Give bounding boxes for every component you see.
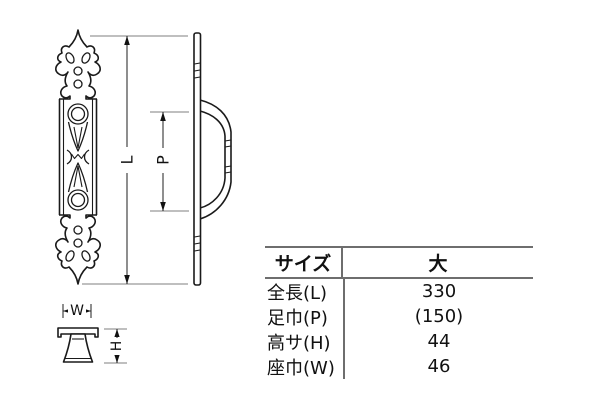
plate-carving <box>67 104 89 210</box>
table-row: 足巾(P)(150) <box>265 304 533 329</box>
dimension-label-W: W <box>70 303 84 319</box>
catalog-page: L P <box>0 0 600 400</box>
handle-inner-curve <box>200 111 225 208</box>
arrow-up-icon <box>160 112 166 121</box>
row-label: 座巾(W) <box>265 354 345 379</box>
dimension-label-L: L <box>118 155 137 164</box>
dimension-label-P: P <box>154 155 173 165</box>
row-value: (150) <box>345 304 533 329</box>
arrow-down-icon <box>160 202 166 211</box>
dimension-label-H: H <box>109 341 125 352</box>
row-value: 330 <box>345 279 533 304</box>
grip-joints <box>225 140 231 173</box>
row-label: 全長(L) <box>265 279 345 304</box>
table-row: 全長(L)330 <box>265 279 533 304</box>
arrow-down-icon <box>124 275 130 284</box>
row-value: 46 <box>345 354 533 379</box>
spec-table-body: 全長(L)330足巾(P)(150)高サ(H)44座巾(W)46 <box>265 279 533 379</box>
table-row: 座巾(W)46 <box>265 354 533 379</box>
size-header-value: 大 <box>343 248 533 277</box>
size-header-label: サイズ <box>265 248 343 277</box>
spec-table: サイズ 大 全長(L)330足巾(P)(150)高サ(H)44座巾(W)46 <box>265 246 533 379</box>
row-label: 高サ(H) <box>265 329 345 354</box>
boss-section <box>64 334 93 362</box>
spec-table-header: サイズ 大 <box>265 248 533 279</box>
row-label: 足巾(P) <box>265 304 345 329</box>
front-view <box>56 30 100 284</box>
arrow-up-icon <box>114 329 119 337</box>
side-view <box>194 33 231 285</box>
arrow-down-icon <box>114 355 119 363</box>
table-row: 高サ(H)44 <box>265 329 533 354</box>
row-value: 44 <box>345 329 533 354</box>
section-view <box>58 328 98 362</box>
arrow-up-icon <box>124 36 130 45</box>
